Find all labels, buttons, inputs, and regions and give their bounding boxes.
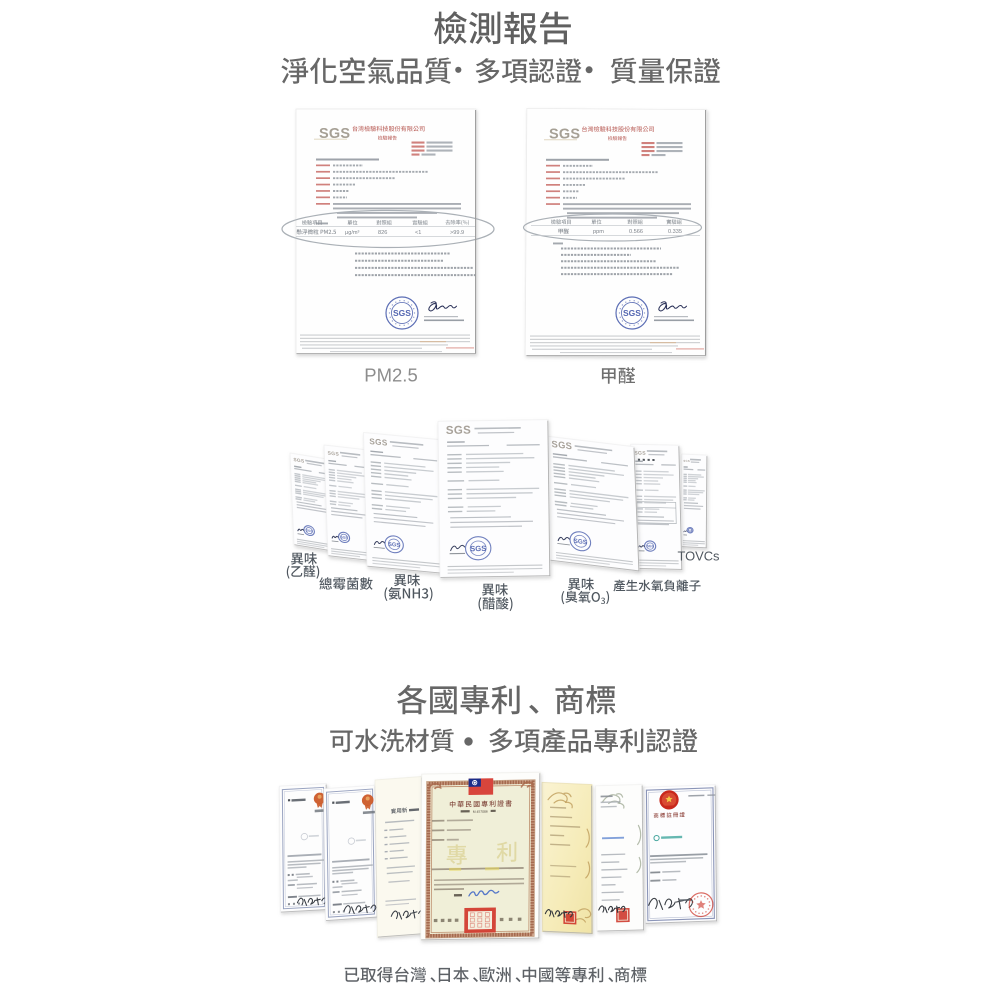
svg-text:SGS: SGS: [683, 459, 690, 463]
svg-text:PM2.5: PM2.5: [364, 365, 417, 386]
svg-text:TOVCs: TOVCs: [677, 549, 719, 564]
svg-text:μg/m³: μg/m³: [345, 230, 360, 236]
svg-text:SGS: SGS: [393, 308, 411, 318]
svg-text:M 457086: M 457086: [473, 810, 488, 814]
svg-text:826: 826: [378, 230, 387, 236]
svg-text:SGS: SGS: [634, 450, 646, 456]
svg-text:0.566: 0.566: [629, 229, 643, 235]
svg-text:<1: <1: [415, 230, 421, 236]
svg-text:>99.9: >99.9: [450, 230, 464, 236]
svg-text:SGS: SGS: [646, 544, 654, 548]
svg-text:ppm: ppm: [593, 229, 604, 235]
svg-text:SGS: SGS: [623, 308, 641, 318]
svg-text:SGS: SGS: [388, 542, 400, 549]
svg-text:SGS: SGS: [446, 425, 471, 437]
svg-text:SGS: SGS: [369, 436, 388, 448]
svg-text:SGS: SGS: [470, 544, 486, 553]
svg-text:0.335: 0.335: [668, 229, 682, 235]
